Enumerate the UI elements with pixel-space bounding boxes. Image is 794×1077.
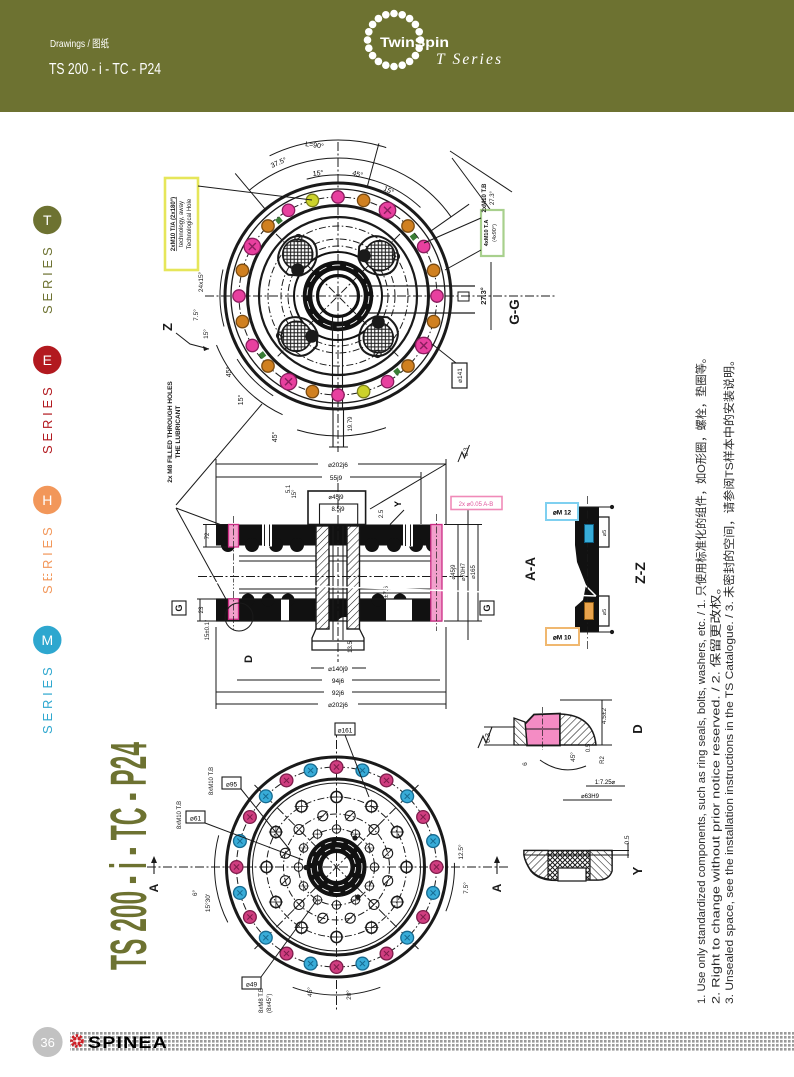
- svg-text:M: M: [41, 632, 53, 648]
- svg-text:±7.6: ±7.6: [384, 586, 390, 598]
- svg-text:1. Use only standardized compo: 1. Use only standardized components, suc…: [694, 352, 708, 1004]
- svg-text:⌀49: ⌀49: [246, 982, 258, 989]
- svg-text:12.5°: 12.5°: [457, 844, 465, 860]
- svg-text:92j6: 92j6: [332, 690, 345, 697]
- svg-text:36: 36: [40, 1035, 54, 1050]
- svg-text:⌀70H7: ⌀70H7: [461, 562, 467, 581]
- svg-text:D: D: [243, 655, 255, 663]
- svg-text:19.79: 19.79: [348, 416, 354, 432]
- svg-text:2xM10 T.B: 2xM10 T.B: [482, 183, 488, 213]
- svg-text:SERIES: SERIES: [40, 664, 55, 734]
- svg-text:45°: 45°: [352, 169, 364, 179]
- svg-text:15°: 15°: [202, 329, 210, 339]
- svg-text:Y: Y: [393, 501, 403, 507]
- svg-text:8xM10 T.B: 8xM10 T.B: [209, 767, 215, 795]
- svg-text:⌀M 10: ⌀M 10: [553, 635, 572, 642]
- svg-text:G: G: [482, 604, 492, 611]
- svg-text:4xM10 T.A: 4xM10 T.A: [484, 220, 490, 247]
- svg-text:15°30': 15°30': [204, 894, 212, 912]
- svg-text:37.5°: 37.5°: [270, 156, 288, 170]
- svg-text:H: H: [42, 492, 52, 508]
- svg-text:D: D: [630, 724, 645, 733]
- svg-text:A-A: A-A: [523, 557, 538, 581]
- svg-text:72: 72: [205, 532, 211, 539]
- svg-text:⌀63H9: ⌀63H9: [581, 794, 600, 800]
- svg-text:⌀140j9: ⌀140j9: [328, 666, 348, 673]
- svg-text:⌀202j6: ⌀202j6: [328, 702, 348, 709]
- svg-text:15°: 15°: [292, 489, 298, 499]
- svg-text:5.1: 5.1: [286, 484, 292, 493]
- svg-text:G: G: [174, 604, 184, 611]
- svg-text:(4x90°): (4x90°): [492, 224, 498, 242]
- svg-text:55j9: 55j9: [330, 475, 343, 482]
- svg-text:⌀45j9: ⌀45j9: [451, 564, 457, 580]
- svg-text:⌀141: ⌀141: [457, 368, 464, 383]
- svg-text:A: A: [490, 883, 504, 892]
- svg-text:15±0.1°: 15±0.1°: [205, 619, 211, 640]
- svg-text:Z: Z: [160, 323, 175, 331]
- svg-text:⌀45j9: ⌀45j9: [329, 495, 345, 501]
- svg-text:0.5: 0.5: [586, 743, 592, 752]
- svg-text:TS 200 - i - TC - P24: TS 200 - i - TC - P24: [49, 61, 161, 78]
- svg-text:94j6: 94j6: [332, 678, 345, 685]
- svg-text:6.3: 6.3: [463, 447, 470, 456]
- svg-text:27.3°: 27.3°: [490, 190, 496, 205]
- svg-text:2.5: 2.5: [379, 509, 385, 518]
- svg-text:G-G: G-G: [507, 299, 522, 325]
- svg-text:Drawings / 图纸: Drawings / 图纸: [50, 37, 109, 50]
- svg-text:⌀202j6: ⌀202j6: [328, 462, 348, 469]
- svg-text:⌀5: ⌀5: [602, 530, 608, 536]
- svg-text:45°: 45°: [569, 752, 577, 762]
- svg-text:TwinSpin: TwinSpin: [380, 34, 449, 50]
- svg-text:THE LUBRICANT: THE LUBRICANT: [175, 406, 182, 459]
- svg-text:2x ⌀0.05 A-B: 2x ⌀0.05 A-B: [459, 502, 494, 508]
- svg-text:3. Unsealed space, see the ins: 3. Unsealed space, see the installation …: [722, 354, 736, 1004]
- svg-text:2. Right to change without pri: 2. Right to change without prior notice …: [709, 580, 723, 1004]
- svg-text:Y: Y: [630, 866, 645, 875]
- svg-text:A: A: [147, 883, 161, 892]
- svg-text:0.5: 0.5: [624, 835, 631, 844]
- svg-text:E: E: [43, 352, 52, 368]
- svg-text:SPINEA: SPINEA: [88, 1033, 168, 1052]
- svg-text:8xM10 T.B: 8xM10 T.B: [177, 801, 183, 829]
- svg-text:T Series: T Series: [436, 51, 501, 68]
- svg-text:8xM8 T.B: 8xM8 T.B: [259, 988, 265, 1013]
- svg-text:45°: 45°: [225, 367, 233, 378]
- svg-text:6°: 6°: [191, 889, 199, 896]
- svg-text:T: T: [43, 212, 52, 228]
- svg-text:13.5: 13.5: [348, 641, 354, 653]
- svg-text:L=90°: L=90°: [305, 140, 325, 151]
- svg-text:6: 6: [522, 762, 529, 766]
- svg-text:⌀165: ⌀165: [471, 565, 477, 579]
- svg-text:Z-Z: Z-Z: [632, 562, 648, 584]
- svg-text:⌀M 12: ⌀M 12: [553, 510, 572, 517]
- svg-text:7.5°: 7.5°: [462, 882, 470, 894]
- svg-text:7.5°: 7.5°: [192, 309, 200, 321]
- svg-text:⌀161: ⌀161: [338, 728, 353, 735]
- svg-text:27.3°: 27.3°: [479, 287, 488, 305]
- svg-text:TS 200 - i - TC - P24: TS 200 - i - TC - P24: [100, 742, 157, 970]
- svg-text:15°: 15°: [237, 395, 245, 406]
- svg-text:⌀61: ⌀61: [190, 816, 202, 823]
- svg-text:24x15°: 24x15°: [197, 271, 205, 292]
- svg-text:⌀95: ⌀95: [226, 782, 238, 789]
- svg-text:SERIES: SERIES: [40, 244, 55, 314]
- svg-text:R2: R2: [600, 756, 606, 764]
- svg-text:15°: 15°: [382, 185, 395, 197]
- svg-text:15°: 15°: [312, 169, 324, 178]
- svg-text:4.5±2: 4.5±2: [601, 708, 608, 725]
- svg-text:SERIES: SERIES: [40, 524, 55, 594]
- svg-text:⌀5: ⌀5: [602, 609, 608, 615]
- svg-text:(8x45°): (8x45°): [267, 994, 273, 1013]
- svg-text:SERIES: SERIES: [40, 384, 55, 454]
- svg-text:technology, away: technology, away: [179, 201, 185, 247]
- svg-text:45°: 45°: [271, 432, 279, 443]
- svg-text:2x M8 FILLED THROUGH HOLES: 2x M8 FILLED THROUGH HOLES: [167, 381, 174, 483]
- svg-text:23: 23: [199, 606, 205, 613]
- svg-text:2xM10 T/A (2x180°): 2xM10 T/A (2x180°): [171, 197, 177, 251]
- svg-text:Technological Hole: Technological Hole: [187, 198, 193, 249]
- svg-text:6.3: 6.3: [485, 733, 492, 743]
- svg-text:1:7.25⌀: 1:7.25⌀: [595, 780, 616, 786]
